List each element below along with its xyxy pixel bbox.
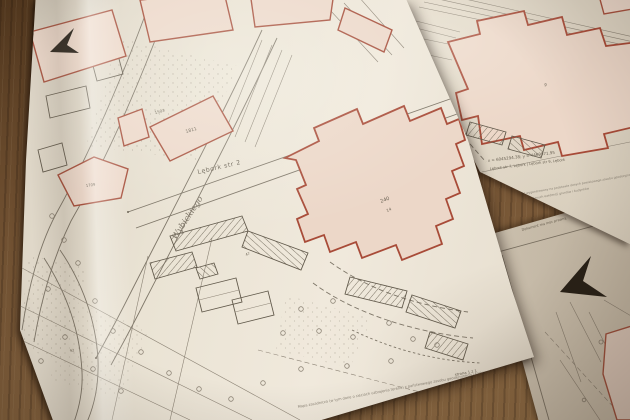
- main-sheet-wrap: Lębork str 2 Wybickiego 1503 1811 240 14…: [0, 0, 630, 420]
- parcel-label: 47: [245, 252, 251, 257]
- main-sheet-drawing: Lębork str 2 Wybickiego 1503 1811 240 14…: [0, 0, 630, 420]
- building-footprint: [250, 0, 334, 27]
- building-footprint: [338, 8, 392, 52]
- building-footprint: [140, 0, 233, 42]
- street-label: Lębork str 2: [197, 159, 242, 176]
- parcel-label: 92: [69, 348, 74, 353]
- photo-of-site-plans: Dokument ma moc prawną: [0, 0, 630, 420]
- main-plan-sheet: Lębork str 2 Wybickiego 1503 1811 240 14…: [0, 0, 630, 420]
- large-building-footprint-240: [285, 106, 465, 260]
